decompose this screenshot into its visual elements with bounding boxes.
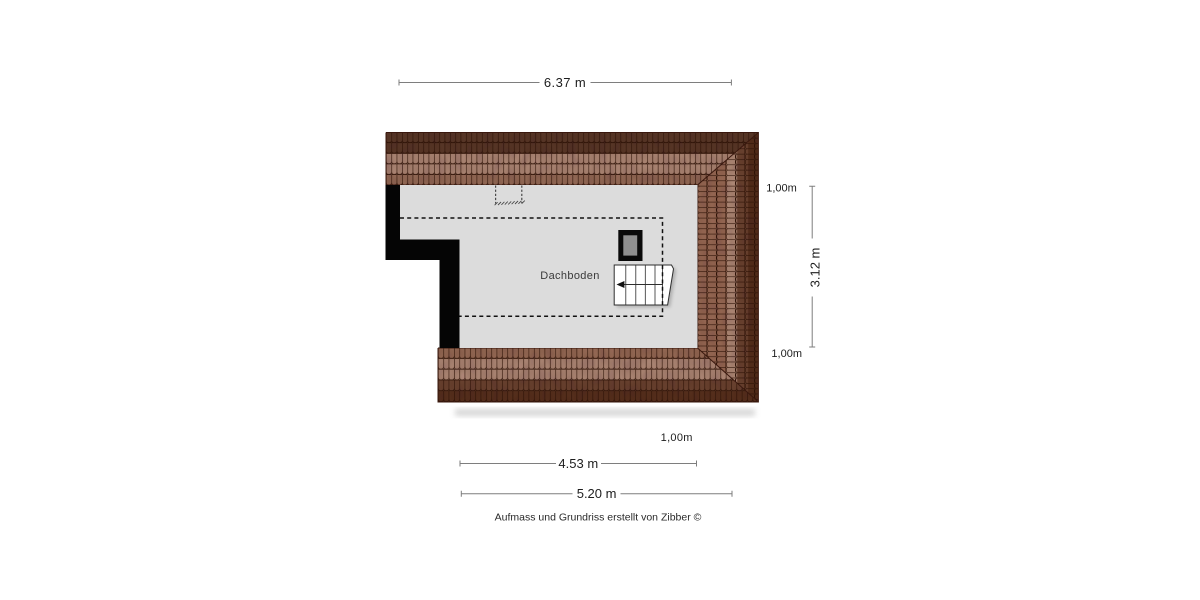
svg-text:3.12 m: 3.12 m [808,248,823,288]
svg-text:5.20 m: 5.20 m [577,486,617,501]
svg-text:1,00m: 1,00m [661,432,693,444]
svg-text:4.53 m: 4.53 m [558,456,598,471]
svg-text:Aufmass und Grundriss erstellt: Aufmass und Grundriss erstellt von Zibbe… [495,511,702,523]
svg-text:6.37 m: 6.37 m [544,75,586,90]
svg-text:1,00m: 1,00m [771,348,802,360]
svg-text:Dachboden: Dachboden [540,270,599,282]
svg-text:1,00m: 1,00m [766,182,797,194]
